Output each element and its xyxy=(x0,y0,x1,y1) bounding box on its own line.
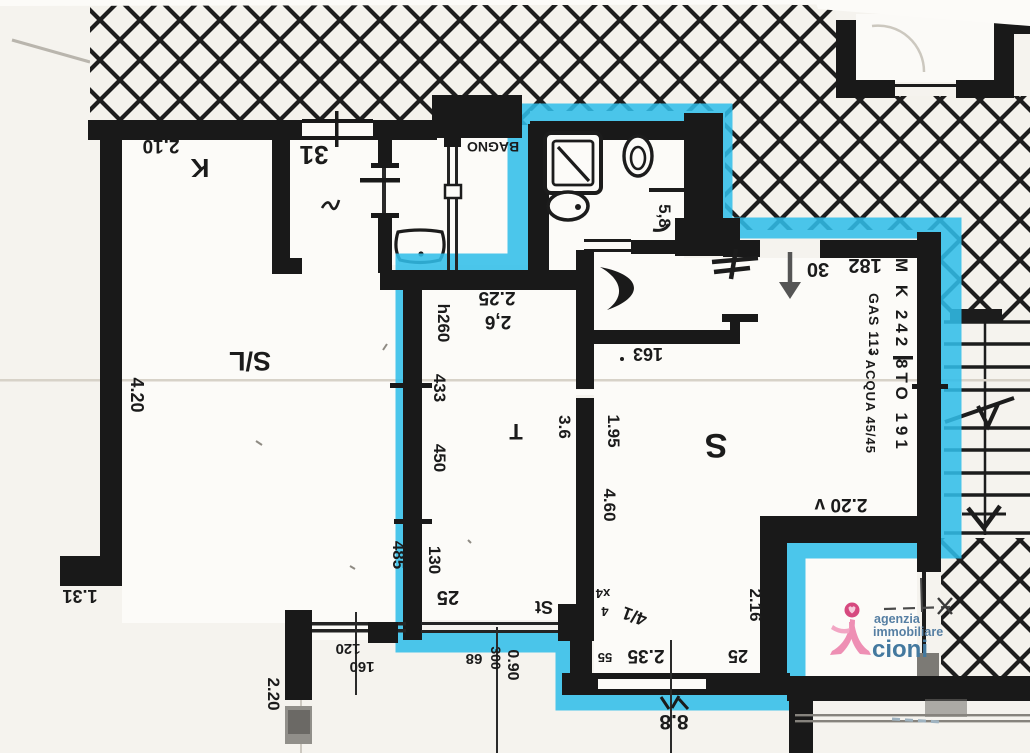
svg-text:0.90: 0.90 xyxy=(504,649,521,680)
svg-text:2.10: 2.10 xyxy=(143,135,180,156)
svg-text:1.95: 1.95 xyxy=(604,414,623,447)
svg-text:M K 242 8TO 191: M K 242 8TO 191 xyxy=(892,258,911,453)
svg-text:3.6: 3.6 xyxy=(555,415,574,439)
svg-text:160: 160 xyxy=(349,658,374,675)
svg-text:68: 68 xyxy=(466,650,483,667)
svg-text:2.20: 2.20 xyxy=(264,677,283,710)
svg-text:cioni: cioni xyxy=(872,636,928,663)
svg-text:K: K xyxy=(190,153,209,183)
svg-text:x4: x4 xyxy=(595,586,610,601)
svg-text:130: 130 xyxy=(425,546,444,574)
svg-text:2,6: 2,6 xyxy=(485,311,511,332)
svg-text:2.16: 2.16 xyxy=(746,588,765,621)
svg-text:• ACQUA 45/45: • ACQUA 45/45 xyxy=(863,350,878,454)
svg-text:4.60: 4.60 xyxy=(600,488,619,521)
svg-text:agenzia: agenzia xyxy=(874,612,921,626)
svg-text:2.35: 2.35 xyxy=(627,645,664,666)
svg-text:5,8: 5,8 xyxy=(655,204,674,228)
svg-text:25: 25 xyxy=(437,586,459,608)
svg-text:S/L: S/L xyxy=(229,346,271,376)
svg-text:120: 120 xyxy=(335,640,360,657)
svg-text:2.20 v: 2.20 v xyxy=(814,494,867,515)
svg-text:4.20: 4.20 xyxy=(127,377,147,412)
svg-text:31: 31 xyxy=(300,140,329,170)
svg-text:433: 433 xyxy=(430,374,449,402)
svg-text:h260: h260 xyxy=(434,304,453,343)
svg-text:T: T xyxy=(509,419,523,444)
svg-text:4: 4 xyxy=(601,604,609,619)
svg-text:485: 485 xyxy=(389,541,408,569)
svg-text:182: 182 xyxy=(848,254,881,276)
svg-text:163: 163 xyxy=(633,344,663,364)
svg-text:450: 450 xyxy=(430,444,449,472)
svg-text:8.8: 8.8 xyxy=(659,710,689,733)
svg-text:30: 30 xyxy=(807,258,829,280)
svg-text:300: 300 xyxy=(488,646,504,670)
svg-text:BAGNO: BAGNO xyxy=(467,139,519,155)
svg-text:1.31: 1.31 xyxy=(62,586,97,606)
svg-text:2.25: 2.25 xyxy=(478,287,515,308)
svg-text:GAS 113: GAS 113 xyxy=(866,293,882,357)
svg-text:S: S xyxy=(705,426,728,464)
svg-text:St: St xyxy=(535,597,553,617)
svg-text:55: 55 xyxy=(598,650,612,665)
svg-text:25: 25 xyxy=(728,646,748,666)
